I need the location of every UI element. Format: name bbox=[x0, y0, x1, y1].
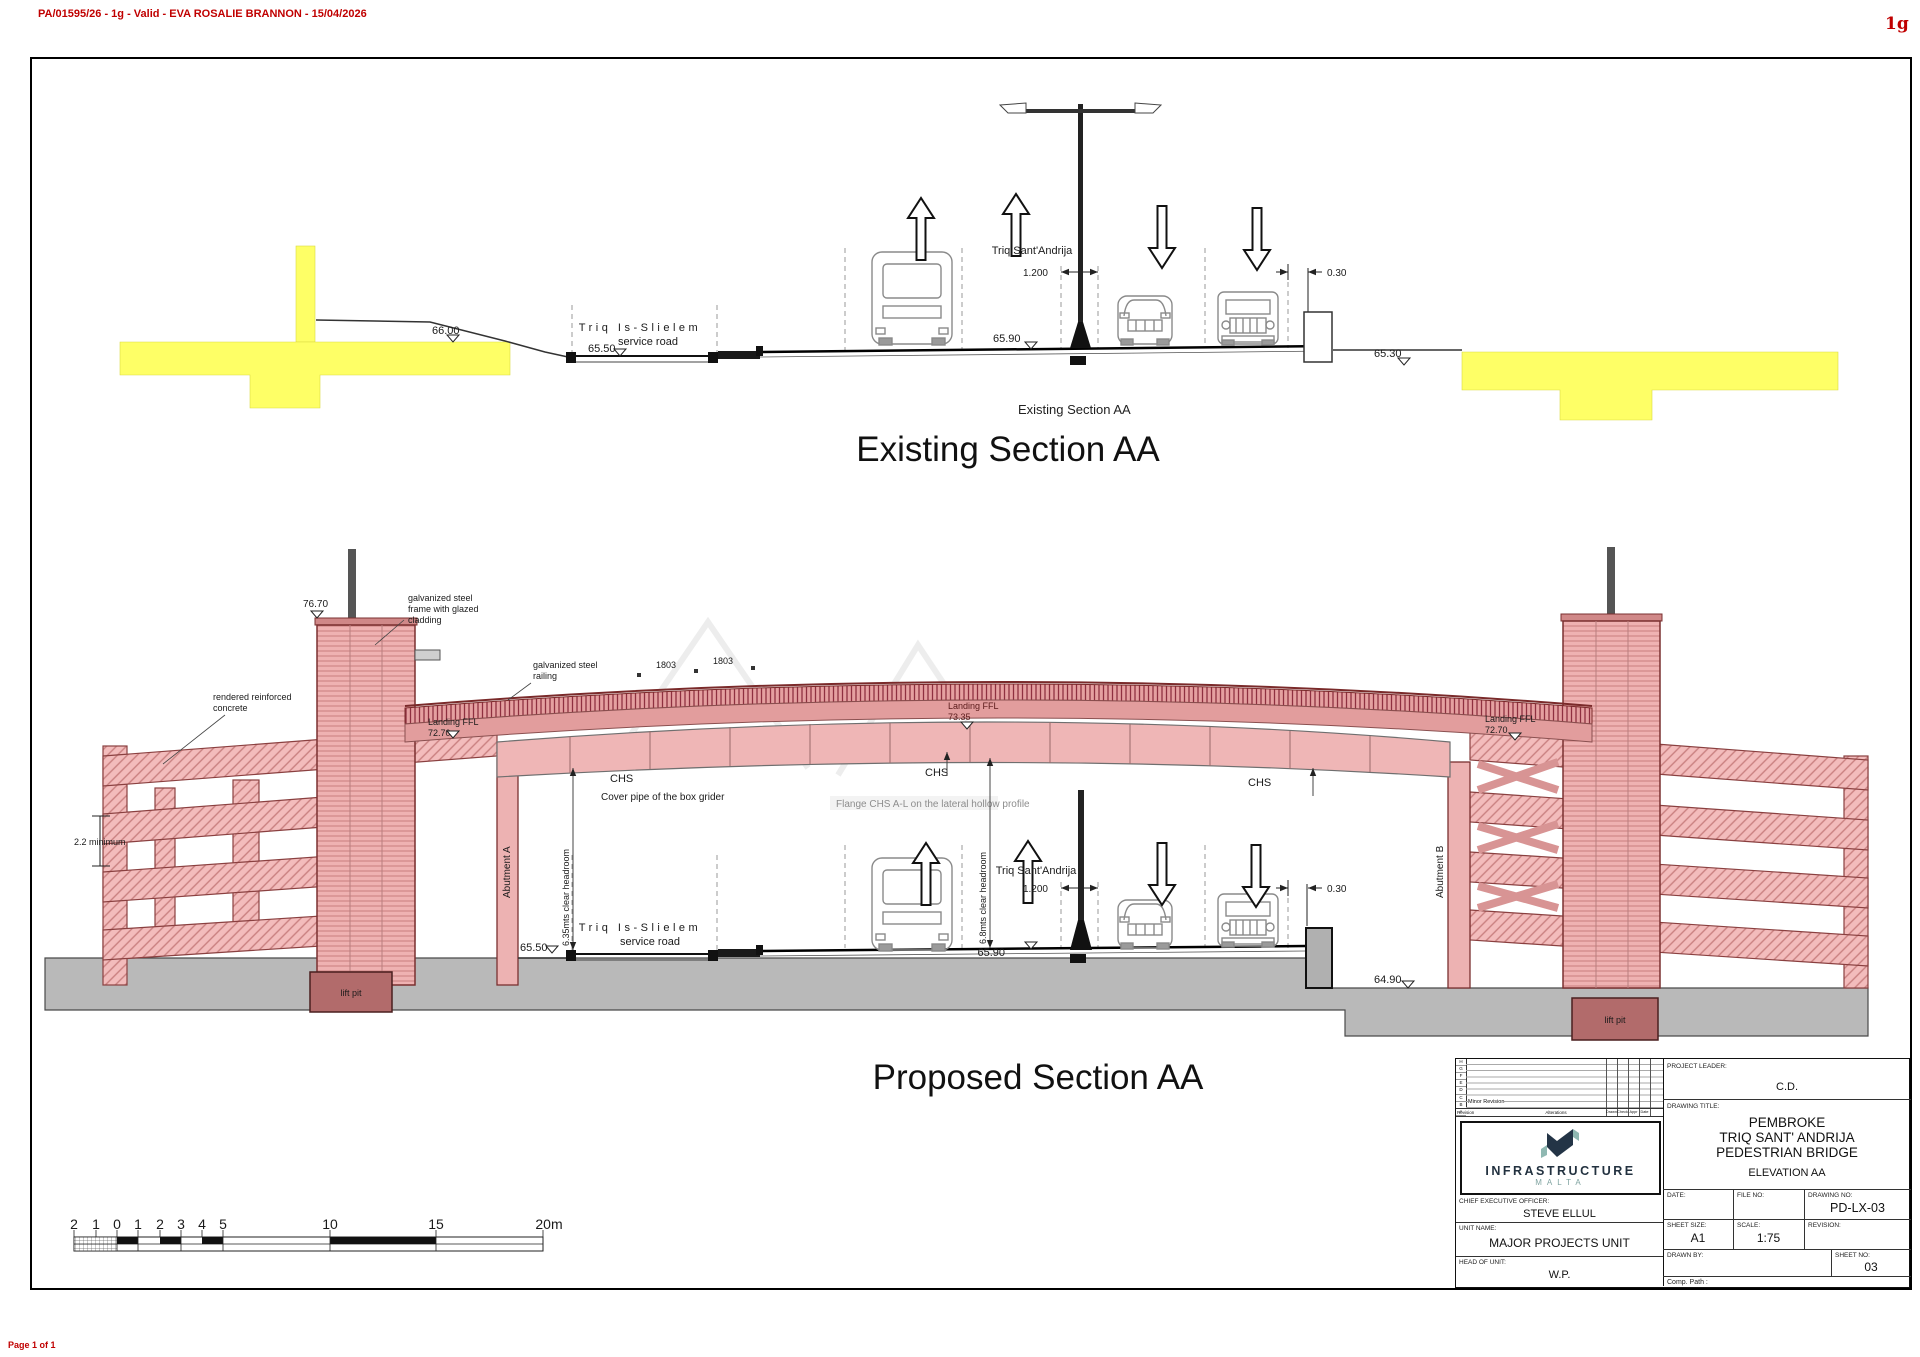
left-mast bbox=[348, 549, 356, 623]
bridge-deck bbox=[405, 682, 1592, 777]
svg-text:0: 0 bbox=[113, 1216, 121, 1232]
drawing-no-value: PD-LX-03 bbox=[1804, 1201, 1911, 1215]
svg-text:0.30: 0.30 bbox=[1327, 268, 1347, 279]
rev-row-letter: C bbox=[1456, 1095, 1466, 1102]
level-76-70: 76.70 bbox=[303, 599, 328, 610]
ceo-value: STEVE ELLUL bbox=[1456, 1208, 1663, 1220]
level-65-90: 65.90 bbox=[977, 947, 1005, 959]
yellow-mass-left bbox=[120, 342, 510, 408]
street-name-label: Triq Is-Slielem bbox=[579, 922, 701, 934]
logo-text: INFRASTRUCTURE bbox=[1462, 1164, 1659, 1178]
traffic-arrow-down bbox=[1244, 208, 1270, 270]
svg-text:72.70: 72.70 bbox=[428, 728, 451, 738]
rev-row-letter: G bbox=[1456, 1066, 1466, 1073]
svg-text:2: 2 bbox=[70, 1216, 78, 1232]
minor-revision-entry: Minor Revision bbox=[1468, 1099, 1504, 1105]
drawing-title-line: PEMBROKE bbox=[1663, 1115, 1911, 1130]
drawing-subtitle: ELEVATION AA bbox=[1663, 1166, 1911, 1181]
dim-030: 0.30 bbox=[1276, 880, 1347, 926]
svg-text:3: 3 bbox=[177, 1216, 185, 1232]
lift-pit-label: lift pit bbox=[1604, 1015, 1626, 1025]
jeep-outline bbox=[1218, 894, 1278, 947]
service-road-label: service road bbox=[620, 936, 680, 948]
svg-text:1803: 1803 bbox=[713, 656, 733, 666]
jeep-outline bbox=[1218, 292, 1278, 345]
road-name-label: Triq Sant'Andrija bbox=[996, 865, 1077, 877]
flange-note: Flange CHS A-L on the lateral hollow pro… bbox=[836, 799, 1030, 810]
svg-text:frame with glazed: frame with glazed bbox=[408, 604, 479, 614]
col-header: Appr bbox=[1628, 1110, 1639, 1114]
yellow-mass-left-strip bbox=[296, 246, 315, 342]
svg-text:galvanized steel: galvanized steel bbox=[408, 593, 473, 603]
headroom-dim-right: 6.8mts clear headroom bbox=[978, 758, 993, 948]
col-header: Drawn bbox=[1606, 1110, 1617, 1114]
rev-row-letter: D bbox=[1456, 1087, 1466, 1094]
drawing-sheet: PA/01595/26 - 1g - Valid - EVA ROSALIE B… bbox=[0, 0, 1920, 1357]
existing-section-drawing: Triq Is-Slielem service road Triq Sant'A… bbox=[120, 103, 1838, 420]
svg-text:0.30: 0.30 bbox=[1327, 884, 1347, 895]
sheet-no-label: SHEET NO: bbox=[1835, 1252, 1870, 1259]
revision-label: REVISION: bbox=[1808, 1222, 1841, 1229]
svg-text:6.35mts clear headroom: 6.35mts clear headroom bbox=[561, 849, 571, 946]
traffic-arrow-down bbox=[1243, 845, 1269, 907]
rev-row-letter: E bbox=[1456, 1080, 1466, 1087]
svg-text:20m: 20m bbox=[535, 1216, 562, 1232]
svg-text:rendered reinforced: rendered reinforced bbox=[213, 692, 292, 702]
traffic-arrow-up bbox=[908, 198, 934, 260]
head-of-unit-label: HEAD OF UNIT: bbox=[1459, 1259, 1506, 1266]
yellow-mass-right bbox=[1462, 352, 1838, 420]
drawing-no-label: DRAWING NO: bbox=[1808, 1192, 1853, 1199]
svg-text:2.2 minimum: 2.2 minimum bbox=[74, 837, 126, 847]
comp-path-label: Comp. Path : bbox=[1667, 1279, 1708, 1286]
file-no-label: FILE NO: bbox=[1737, 1192, 1764, 1199]
lift-pit-label: lift pit bbox=[340, 988, 362, 998]
rev-row-letter: F bbox=[1456, 1073, 1466, 1080]
car-outline bbox=[1118, 296, 1172, 345]
existing-caption: Existing Section AA bbox=[1018, 402, 1131, 417]
svg-text:galvanized steel: galvanized steel bbox=[533, 660, 598, 670]
street-light bbox=[1000, 103, 1161, 348]
revision-table: H G F E D C B A Minor Revision Revision … bbox=[1456, 1059, 1664, 1117]
project-leader-label: PROJECT LEADER: bbox=[1667, 1063, 1727, 1070]
right-lift-tower bbox=[1563, 621, 1660, 988]
traffic-arrow-up bbox=[913, 843, 939, 905]
existing-section-title: Existing Section AA bbox=[798, 430, 1218, 470]
svg-text:1.200: 1.200 bbox=[1023, 884, 1048, 895]
kerb-block bbox=[718, 949, 760, 957]
svg-text:Landing FFL: Landing FFL bbox=[1485, 714, 1536, 724]
left-parking-structure bbox=[103, 726, 497, 985]
road-name-label: Triq Sant'Andrija bbox=[992, 245, 1073, 257]
right-mast bbox=[1607, 547, 1615, 619]
svg-text:4: 4 bbox=[198, 1216, 206, 1232]
kerb-block bbox=[718, 351, 760, 359]
col-header: Revision bbox=[1457, 1110, 1474, 1115]
proposed-section-drawing: lift pit lift pit 76.70 galvanized steel… bbox=[45, 547, 1868, 1040]
sheet-size-label: SHEET SIZE: bbox=[1667, 1222, 1707, 1229]
traffic-arrow-down bbox=[1149, 206, 1175, 268]
level-65-50: 65.50 bbox=[588, 343, 616, 355]
svg-text:6.8mts clear headroom: 6.8mts clear headroom bbox=[978, 852, 988, 944]
traffic-arrow-down bbox=[1149, 843, 1175, 905]
bus-outline bbox=[872, 252, 952, 345]
svg-text:1: 1 bbox=[92, 1216, 100, 1232]
cover-pipe-note: Cover pipe of the box grider bbox=[601, 792, 725, 803]
abutment-b-label: Abutment B bbox=[1435, 845, 1446, 898]
col-header: Alterations bbox=[1516, 1110, 1596, 1115]
svg-text:5: 5 bbox=[219, 1216, 227, 1232]
sheet-no-value: 03 bbox=[1831, 1260, 1911, 1274]
head-of-unit-value: W.P. bbox=[1456, 1269, 1663, 1281]
svg-text:10: 10 bbox=[322, 1216, 338, 1232]
logo-text: MALTA bbox=[1462, 1178, 1659, 1187]
car-outline bbox=[1118, 900, 1172, 949]
chs-label: CHS bbox=[925, 767, 948, 779]
proposed-section-title: Proposed Section AA bbox=[828, 1058, 1248, 1098]
abutment-a-label: Abutment A bbox=[502, 846, 513, 898]
scale-value: 1:75 bbox=[1733, 1231, 1804, 1245]
infrastructure-malta-logo: INFRASTRUCTURE MALTA bbox=[1460, 1121, 1661, 1195]
svg-text:Landing FFL: Landing FFL bbox=[948, 701, 999, 711]
chs-label: CHS bbox=[1248, 777, 1271, 789]
street-name-label: Triq Is-Slielem bbox=[579, 322, 701, 334]
project-leader-value: C.D. bbox=[1663, 1081, 1911, 1093]
date-label: DATE: bbox=[1667, 1192, 1686, 1199]
drawing-title: PEMBROKE TRIQ SANT' ANDRIJA PEDESTRIAN B… bbox=[1663, 1115, 1911, 1181]
lane-guide-lines bbox=[572, 248, 1288, 360]
level-65-50: 65.50 bbox=[520, 942, 548, 954]
scale-bar: 2 1 0 1 2 3 4 5 10 15 20m bbox=[70, 1216, 563, 1251]
unit-label: UNIT NAME: bbox=[1459, 1225, 1496, 1232]
svg-text:72.70: 72.70 bbox=[1485, 725, 1508, 735]
svg-text:73.35: 73.35 bbox=[948, 712, 971, 722]
drawing-title-label: DRAWING TITLE: bbox=[1667, 1103, 1719, 1110]
svg-text:1: 1 bbox=[134, 1216, 142, 1232]
dim-030: 0.30 bbox=[1276, 264, 1347, 280]
dim-1200: 1.200 bbox=[1023, 884, 1098, 895]
rev-row-letter: H bbox=[1456, 1059, 1466, 1066]
svg-text:railing: railing bbox=[533, 671, 557, 681]
sheet-size-value: A1 bbox=[1663, 1231, 1733, 1245]
main-road bbox=[756, 346, 1332, 365]
svg-text:1.200: 1.200 bbox=[1023, 268, 1048, 279]
abutment-b-wall bbox=[1448, 762, 1470, 988]
svg-text:1803: 1803 bbox=[656, 660, 676, 670]
bus-outline bbox=[872, 858, 952, 951]
logo-mark-icon bbox=[1539, 1127, 1583, 1159]
chs-label: CHS bbox=[610, 773, 633, 785]
right-tower-cap bbox=[1561, 614, 1662, 621]
unit-value: MAJOR PROJECTS UNIT bbox=[1456, 1236, 1663, 1250]
col-header: Check bbox=[1617, 1110, 1628, 1114]
svg-text:cladding: cladding bbox=[408, 615, 442, 625]
drawn-by-label: DRAWN BY: bbox=[1667, 1252, 1703, 1259]
left-lift-tower bbox=[317, 625, 415, 985]
right-braces bbox=[1478, 762, 1558, 908]
svg-text:2: 2 bbox=[156, 1216, 164, 1232]
ceo-label: CHIEF EXECUTIVE OFFICER: bbox=[1459, 1198, 1549, 1205]
scale-label: SCALE: bbox=[1737, 1222, 1760, 1229]
drawing-title-line: PEDESTRIAN BRIDGE bbox=[1663, 1145, 1911, 1160]
scale-bar-numbers: 2 1 0 1 2 3 4 5 10 15 20m bbox=[70, 1216, 563, 1232]
svg-text:15: 15 bbox=[428, 1216, 444, 1232]
level-64-90: 64.90 bbox=[1374, 974, 1402, 986]
svg-text:concrete: concrete bbox=[213, 703, 248, 713]
col-header: Date bbox=[1639, 1110, 1650, 1114]
tower-ledge bbox=[415, 650, 440, 660]
level-65-90: 65.90 bbox=[993, 333, 1021, 345]
headroom-dim-left: 6.35mts clear headroom bbox=[561, 768, 576, 950]
drawing-title-line: TRIQ SANT' ANDRIJA bbox=[1663, 1130, 1911, 1145]
level-65-30: 65.30 bbox=[1374, 348, 1402, 360]
dim-1200: 1.200 bbox=[1023, 268, 1098, 279]
title-block: H G F E D C B A Minor Revision Revision … bbox=[1455, 1058, 1910, 1288]
service-road-label: service road bbox=[618, 336, 678, 348]
svg-text:Landing FFL: Landing FFL bbox=[428, 717, 479, 727]
retaining-wall-right bbox=[1306, 928, 1332, 988]
